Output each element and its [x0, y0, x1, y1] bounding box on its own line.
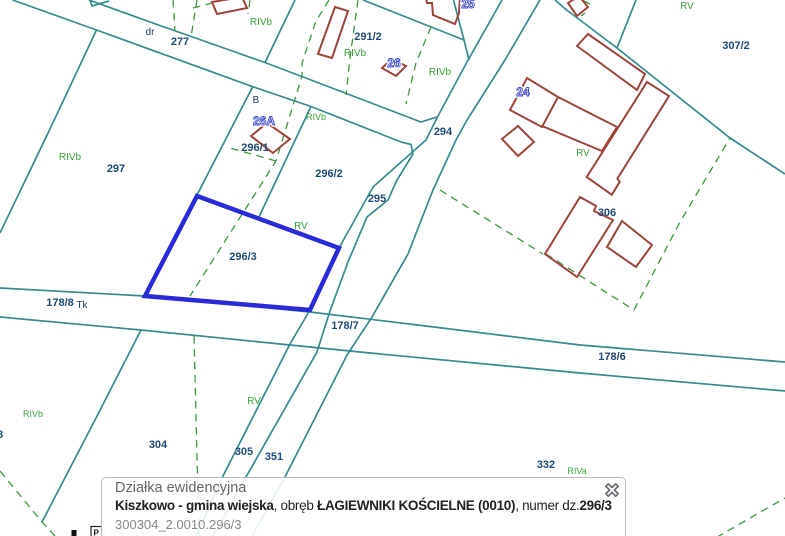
- svg-text:178/8: 178/8: [46, 297, 74, 309]
- svg-text:295: 295: [368, 193, 386, 205]
- svg-text:26A: 26A: [253, 114, 275, 128]
- svg-text:RIVb: RIVb: [306, 112, 326, 122]
- svg-text:P: P: [94, 529, 100, 536]
- svg-text:RV: RV: [247, 396, 261, 407]
- svg-text:178/7: 178/7: [331, 320, 359, 332]
- svg-text:RV: RV: [680, 1, 694, 12]
- svg-text:25: 25: [461, 0, 475, 11]
- svg-text:178/6: 178/6: [598, 351, 626, 363]
- svg-text:332: 332: [537, 459, 555, 471]
- svg-text:304: 304: [149, 439, 168, 451]
- svg-text:305: 305: [235, 446, 253, 458]
- svg-text:B: B: [253, 95, 260, 106]
- svg-text:dr: dr: [146, 27, 156, 38]
- svg-text:24: 24: [516, 85, 530, 99]
- svg-text:26: 26: [387, 56, 401, 70]
- svg-text:8: 8: [0, 429, 3, 441]
- svg-text:RV: RV: [294, 221, 308, 232]
- svg-text:351: 351: [265, 451, 283, 463]
- svg-text:277: 277: [171, 36, 189, 48]
- svg-text:291/2: 291/2: [354, 31, 382, 43]
- svg-text:296/2: 296/2: [315, 168, 343, 180]
- svg-text:294: 294: [434, 126, 453, 138]
- svg-text:RV: RV: [576, 148, 590, 159]
- svg-text:296/3: 296/3: [229, 251, 257, 263]
- svg-text:RIVb: RIVb: [59, 152, 82, 163]
- svg-text:297: 297: [107, 163, 125, 175]
- svg-text:RIVb: RIVb: [250, 17, 273, 28]
- svg-text:RIVb: RIVb: [23, 409, 43, 419]
- svg-text:Tk: Tk: [76, 300, 88, 311]
- svg-text:RIVa: RIVa: [567, 466, 586, 476]
- svg-text:307/2: 307/2: [722, 40, 750, 52]
- svg-text:296/1: 296/1: [241, 142, 269, 154]
- svg-text:RIVb: RIVb: [344, 48, 367, 59]
- svg-text:306: 306: [598, 207, 616, 219]
- svg-text:RIVb: RIVb: [429, 67, 452, 78]
